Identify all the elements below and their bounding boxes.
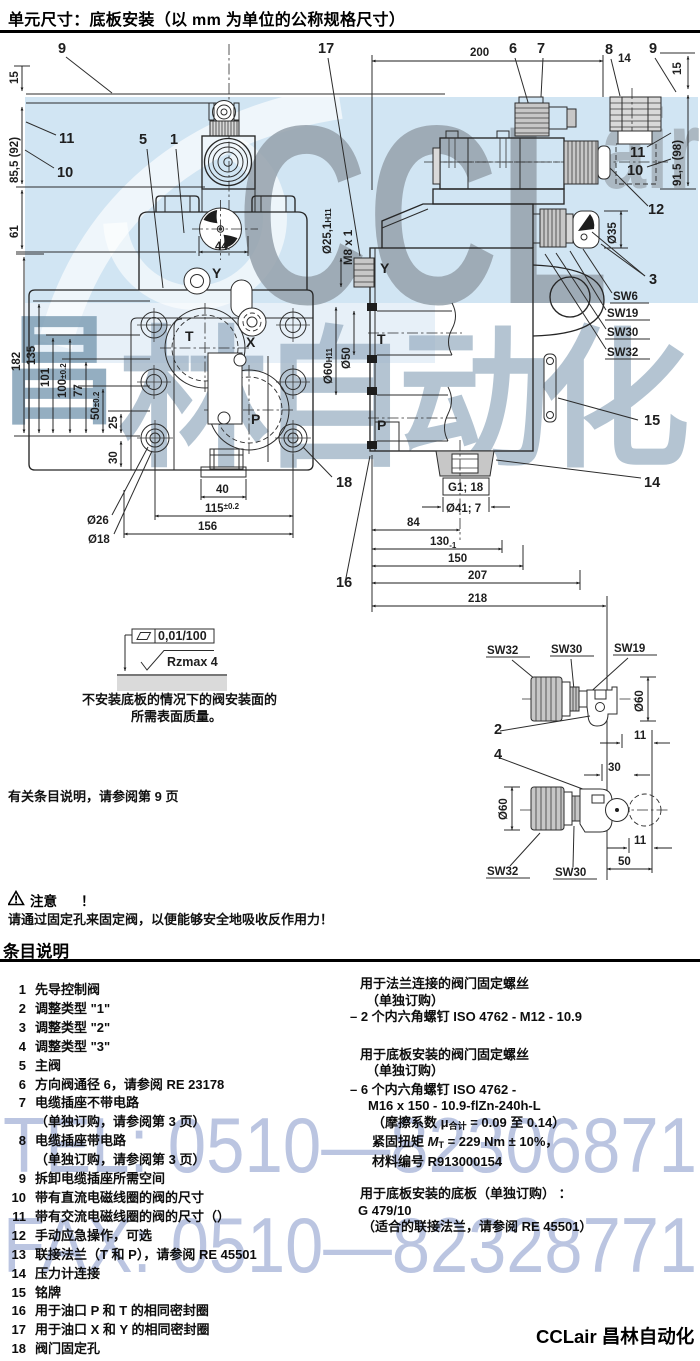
svg-text:SW32: SW32 [487,866,518,878]
svg-text:Ø26: Ø26 [87,515,109,527]
svg-text:P: P [377,417,386,433]
svg-text:5: 5 [139,132,147,148]
svg-text:G1; 18: G1; 18 [448,482,484,494]
svg-text:SW6: SW6 [613,291,638,303]
svg-text:150: 150 [448,553,467,565]
svg-text:M8 x 1: M8 x 1 [343,229,355,265]
svg-text:6: 6 [509,41,517,57]
svg-text:Y: Y [380,260,390,276]
svg-text:207: 207 [468,570,487,582]
svg-text:44: 44 [215,241,228,253]
svg-text:12: 12 [648,202,664,218]
svg-text:10: 10 [627,163,643,179]
svg-text:182: 182 [11,352,23,371]
svg-text:15: 15 [9,71,21,84]
svg-text:61: 61 [9,225,21,238]
svg-text:SW19: SW19 [614,643,645,655]
svg-text:SW32: SW32 [607,347,638,359]
svg-text:50±0.2: 50±0.2 [90,391,102,420]
svg-text:Ø60: Ø60 [498,798,510,820]
svg-text:SW30: SW30 [551,644,582,656]
svg-text:Ø60H11: Ø60H11 [323,347,335,384]
svg-text:Ø18: Ø18 [88,534,110,546]
svg-text:50: 50 [618,856,631,868]
svg-text:Rzmax 4: Rzmax 4 [167,655,218,669]
svg-text:130-1: 130-1 [430,536,457,550]
svg-text:SW32: SW32 [487,645,518,657]
svg-text:25: 25 [108,416,120,429]
svg-text:11: 11 [634,730,647,742]
svg-text:4: 4 [494,747,502,763]
svg-text:10: 10 [57,165,73,181]
svg-text:Ø50: Ø50 [341,347,353,369]
svg-text:101: 101 [40,367,52,387]
svg-text:Y: Y [212,265,222,281]
svg-text:85,5 (92): 85,5 (92) [9,137,21,183]
svg-text:8: 8 [605,42,613,58]
svg-text:11: 11 [634,835,647,847]
svg-text:40: 40 [216,484,229,496]
svg-text:30: 30 [108,451,120,464]
svg-text:SW19: SW19 [607,308,638,320]
svg-text:11: 11 [59,131,74,147]
svg-text:2: 2 [494,722,502,738]
svg-text:7: 7 [537,41,545,57]
svg-text:3: 3 [649,272,657,288]
svg-text:14: 14 [618,53,631,65]
svg-text:9: 9 [649,41,657,57]
svg-text:156: 156 [198,521,217,533]
svg-text:Ø41; 7: Ø41; 7 [446,503,481,515]
svg-text:15: 15 [644,413,660,429]
svg-text:0,01/100: 0,01/100 [158,629,207,643]
svg-text:Ø35: Ø35 [607,222,619,244]
svg-text:200: 200 [470,47,489,59]
svg-text:11: 11 [630,145,645,161]
svg-text:115±0.2: 115±0.2 [205,502,240,515]
svg-text:9: 9 [58,41,66,57]
svg-text:17: 17 [318,41,334,57]
svg-text:15: 15 [672,62,684,75]
svg-text:100±0.2: 100±0.2 [57,363,69,398]
svg-text:91,5 (98): 91,5 (98) [672,140,684,186]
svg-text:P: P [251,411,260,427]
svg-text:135: 135 [26,345,38,365]
svg-text:84: 84 [407,517,420,529]
svg-text:1: 1 [170,132,178,148]
svg-text:18: 18 [336,475,352,491]
svg-text:Ø25,1H11: Ø25,1H11 [322,208,334,254]
svg-text:Ø60: Ø60 [634,690,646,712]
svg-text:30: 30 [608,762,621,774]
svg-text:T: T [185,328,194,344]
svg-text:SW30: SW30 [555,867,586,879]
svg-text:SW30: SW30 [607,327,638,339]
svg-text:14: 14 [644,475,660,491]
svg-text:16: 16 [336,575,352,591]
svg-text:218: 218 [468,593,488,605]
